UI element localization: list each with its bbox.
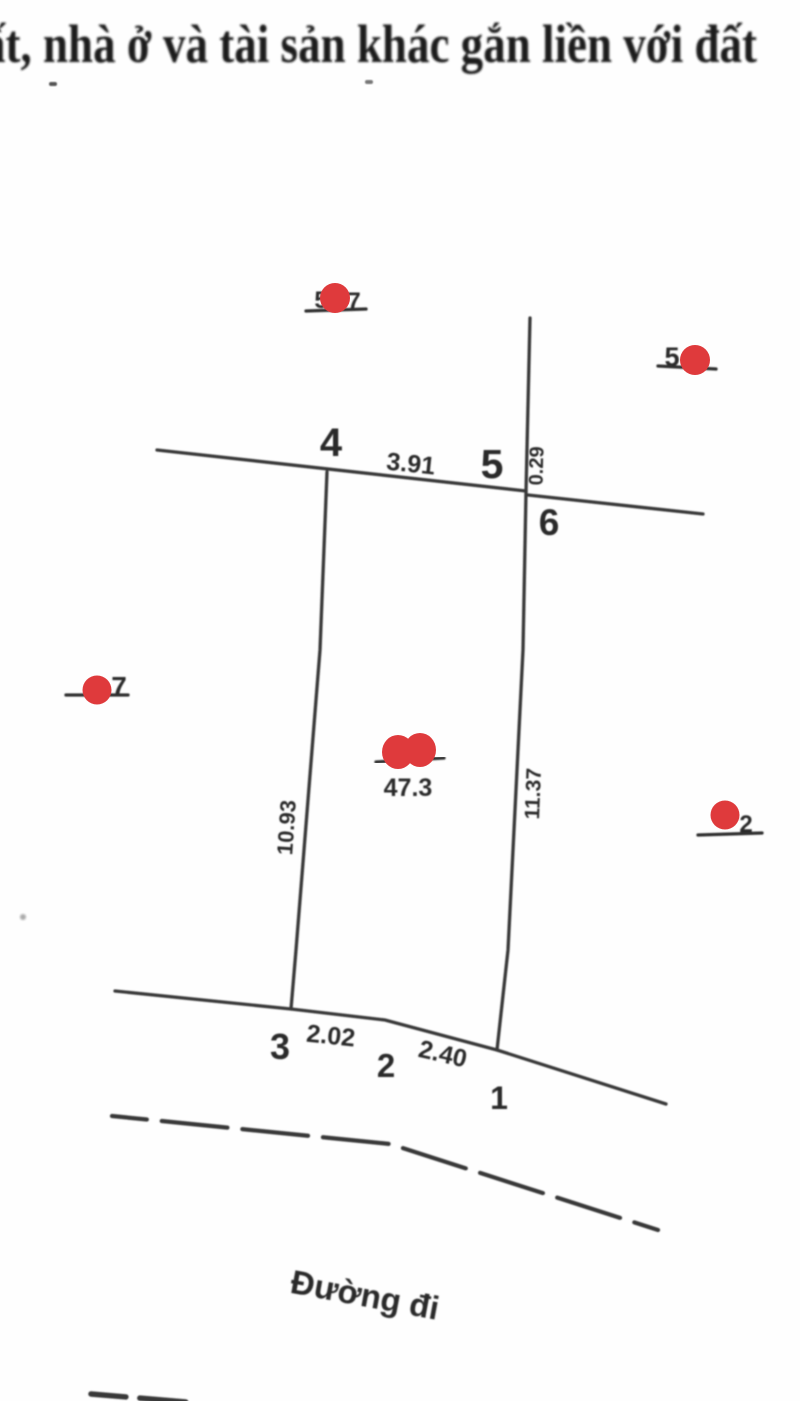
svg-text:1: 1 [490,1080,508,1116]
svg-text:6: 6 [539,502,560,543]
svg-text:ất, nhà ở và tài sản khác gắn: ất, nhà ở và tài sản khác gắn liền với đ… [0,14,757,74]
svg-text:3.91: 3.91 [385,448,436,481]
svg-text:5: 5 [481,441,504,487]
svg-text:4: 4 [320,421,343,465]
svg-text:0.29: 0.29 [526,446,549,485]
svg-text:2.02: 2.02 [305,1020,356,1053]
svg-text:2: 2 [377,1047,395,1084]
svg-text:Đường đi: Đường đi [288,1263,442,1327]
svg-text:10.93: 10.93 [272,799,301,856]
svg-text:47.3: 47.3 [384,774,433,802]
svg-text:3: 3 [270,1026,290,1067]
svg-text:7: 7 [111,671,127,702]
svg-text:11.37: 11.37 [521,768,546,820]
